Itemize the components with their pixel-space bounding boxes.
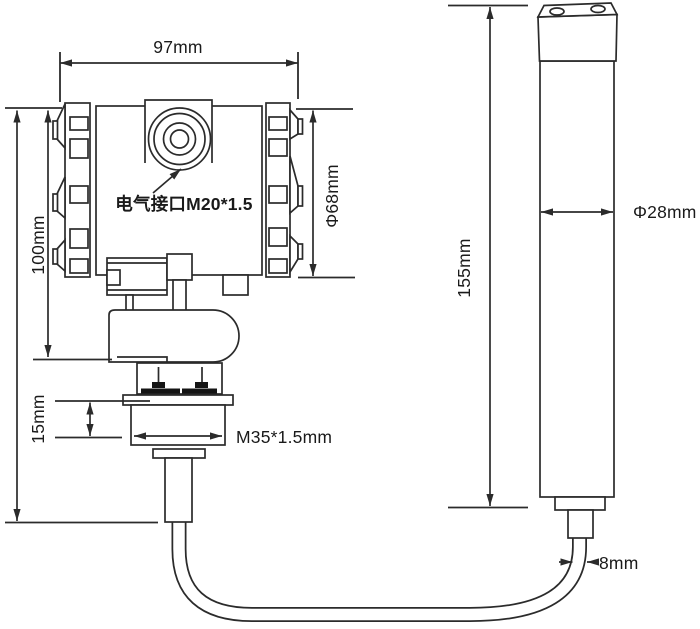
drawing-canvas: 97mm 100mm Φ68mm 15mm: [0, 0, 700, 629]
bracket-stem: [173, 280, 186, 311]
flange-tab-tip: [298, 119, 303, 134]
pin-foot: [195, 382, 208, 388]
down-pipe: [165, 458, 192, 522]
probe-step: [555, 497, 605, 510]
flange-slot: [269, 117, 287, 130]
pin-foot: [152, 382, 165, 388]
dim-probe-length: 155mm: [448, 6, 528, 508]
dimension-drawing: 97mm 100mm Φ68mm 15mm: [0, 0, 700, 629]
flange-slot: [269, 228, 287, 246]
dim-label-15mm: 15mm: [28, 394, 48, 443]
lower-collar: [153, 449, 205, 458]
bracket-leg: [126, 295, 133, 311]
probe: [538, 3, 617, 538]
probe-body: [540, 61, 614, 497]
flange-slot: [70, 139, 88, 158]
flange-tab: [290, 236, 298, 272]
flange-tab: [290, 156, 298, 213]
flange-tab: [290, 110, 298, 139]
bracket-window: [107, 270, 120, 285]
left-flange: [53, 103, 90, 277]
seal-strip: [141, 389, 180, 394]
dim-label-155mm: 155mm: [454, 238, 474, 297]
dim-label-phi28: Φ28mm: [633, 202, 697, 222]
right-flange: [266, 103, 303, 277]
label-electrical-interface: 电气接口M20*1.5: [115, 194, 252, 214]
transmitter-head: [53, 100, 303, 522]
seal-strip: [182, 389, 217, 394]
flange-tab-tip: [53, 121, 58, 139]
probe-cap-front: [538, 15, 617, 62]
flange-slot: [269, 139, 287, 156]
cable-outline: [179, 515, 580, 615]
flange-tab-tip: [53, 194, 58, 211]
flange-slot: [70, 229, 88, 248]
flange-tab-tip: [298, 186, 303, 206]
process-body: [109, 310, 239, 362]
dim-label-m35: M35*1.5mm: [236, 427, 332, 447]
gland-circle-outer: [149, 108, 211, 170]
mounting-stack: [123, 363, 233, 522]
flange-tab-tip: [53, 249, 58, 264]
cable-core: [179, 515, 580, 615]
bracket-block: [167, 254, 192, 280]
flange-plate: [123, 395, 233, 405]
flange-slot: [70, 186, 88, 203]
capsule: [109, 310, 239, 362]
dim-label-97mm: 97mm: [153, 37, 202, 57]
dim-label-phi68: Φ68mm: [322, 164, 342, 228]
dim-head-diameter: Φ68mm: [296, 109, 355, 278]
connection-cable: [179, 515, 580, 615]
side-boss: [223, 275, 248, 295]
dim-head-width: 97mm: [60, 37, 298, 102]
probe-neck: [568, 510, 593, 538]
dim-label-8mm: 8mm: [599, 553, 639, 573]
thread-boss: [131, 405, 225, 445]
flange-slot: [269, 186, 287, 203]
flange-slot: [269, 259, 287, 273]
flange-slot: [70, 259, 88, 273]
flange-slot: [70, 117, 88, 130]
flange-tab-tip: [298, 244, 303, 259]
dim-label-100mm: 100mm: [28, 215, 48, 274]
